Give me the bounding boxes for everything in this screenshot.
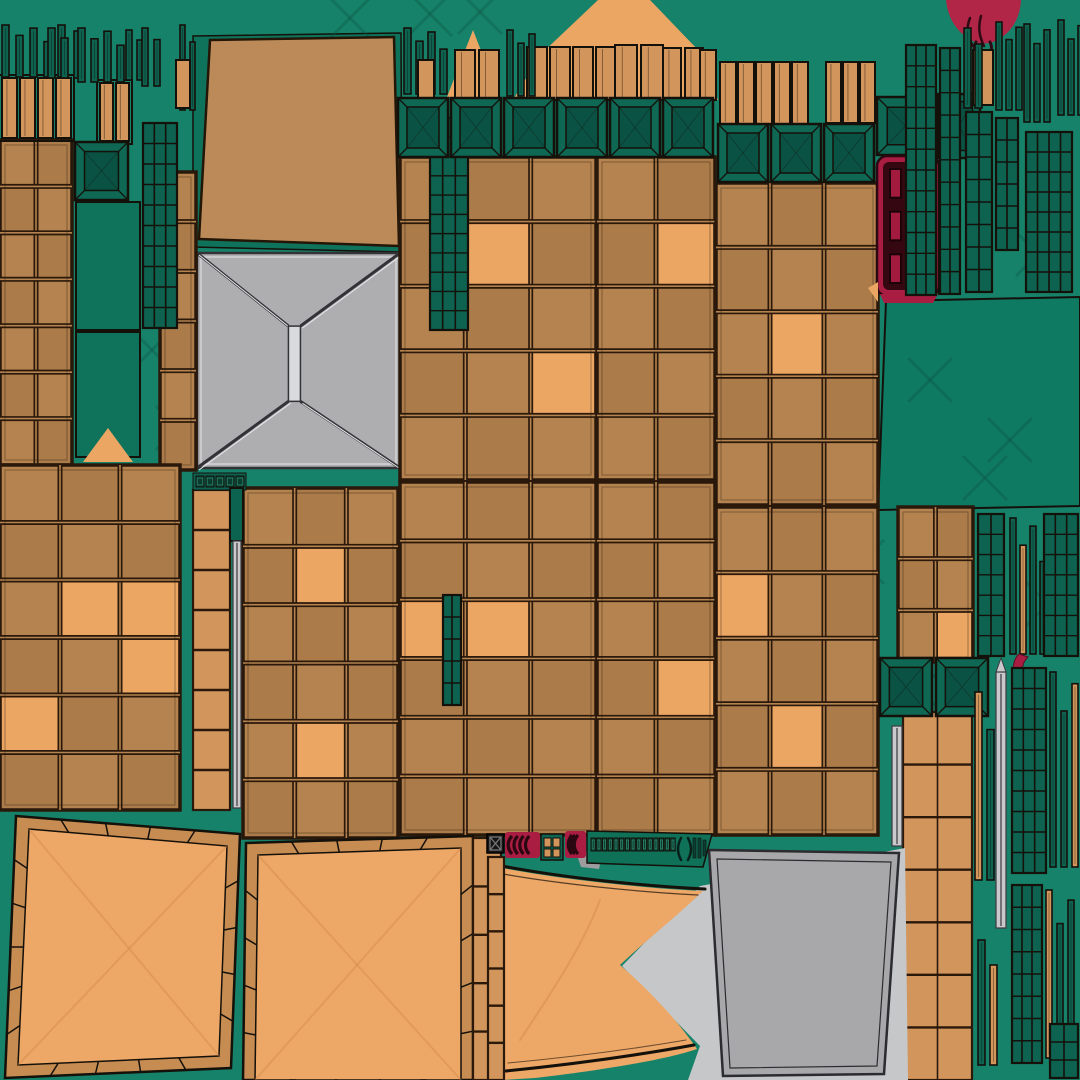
strip-minigrid-c1 — [544, 838, 551, 847]
teal-bar-small — [230, 488, 243, 541]
wood-panel-j — [0, 465, 180, 810]
plank-single-a — [176, 60, 190, 108]
wood-ladder-l1 — [193, 490, 230, 810]
strip-col-g — [1012, 885, 1042, 1063]
strip-arcs-a — [505, 832, 540, 858]
wood-panel-i — [0, 140, 72, 465]
strip-minigrid-c3 — [544, 849, 551, 857]
strip-square-row — [591, 838, 675, 851]
strip-bar-c — [703, 840, 706, 856]
plank-row-f — [720, 62, 808, 124]
strip-col-a — [978, 514, 1004, 656]
strip-col-r2 — [940, 48, 960, 294]
floor-quad-b — [243, 836, 473, 1080]
gray-trapezoid — [709, 850, 899, 1076]
plank-row-tl1 — [0, 75, 74, 141]
wood-panel-g — [597, 482, 715, 835]
uv-atlas-canvas — [0, 0, 1080, 1080]
strip-bar-a — [693, 838, 696, 858]
strip-bar-b — [698, 838, 701, 858]
strip-arcs-b — [565, 831, 586, 858]
wood-board — [199, 37, 399, 246]
strip-col-r6 — [996, 118, 1018, 250]
teal-board-small-a — [76, 202, 140, 330]
strip-col-e — [1012, 668, 1046, 873]
teal-board-right — [878, 297, 1080, 510]
slat-ladder-a — [143, 123, 177, 328]
floor-quad-a — [5, 816, 240, 1078]
strip-minigrid-c4 — [553, 849, 560, 857]
gray-rod-mid — [892, 726, 902, 846]
plank-row-g — [826, 62, 875, 123]
strip-xbox — [487, 834, 504, 853]
uv-texture-atlas — [0, 0, 1080, 1080]
wood-panel-b — [243, 488, 398, 838]
mini-square-row — [196, 476, 244, 487]
strip-col-r1 — [906, 45, 936, 295]
sail-ladder — [488, 857, 504, 1080]
frame-single-c — [75, 142, 128, 200]
slat-ladder-c — [443, 595, 461, 705]
roof-panel — [197, 253, 402, 470]
plank-row-e — [700, 50, 716, 100]
wood-panel-d — [597, 157, 715, 480]
strip-col-c — [1044, 514, 1078, 656]
wood-panel-f — [400, 482, 596, 835]
wood-panel-h — [716, 507, 878, 835]
wood-panel-m — [898, 507, 973, 662]
wood-panel-e — [716, 183, 878, 505]
frame-row-right — [718, 124, 874, 182]
gray-rod-right — [996, 658, 1006, 928]
strip-col-r4 — [966, 112, 992, 292]
gray-rod-left — [233, 541, 241, 808]
strip-col-r8 — [1026, 132, 1072, 292]
plank-single-b — [418, 60, 434, 100]
wood-ladder-n — [903, 712, 972, 1080]
strip-minigrid-c2 — [553, 838, 560, 847]
strip-col-j — [1050, 1024, 1078, 1078]
